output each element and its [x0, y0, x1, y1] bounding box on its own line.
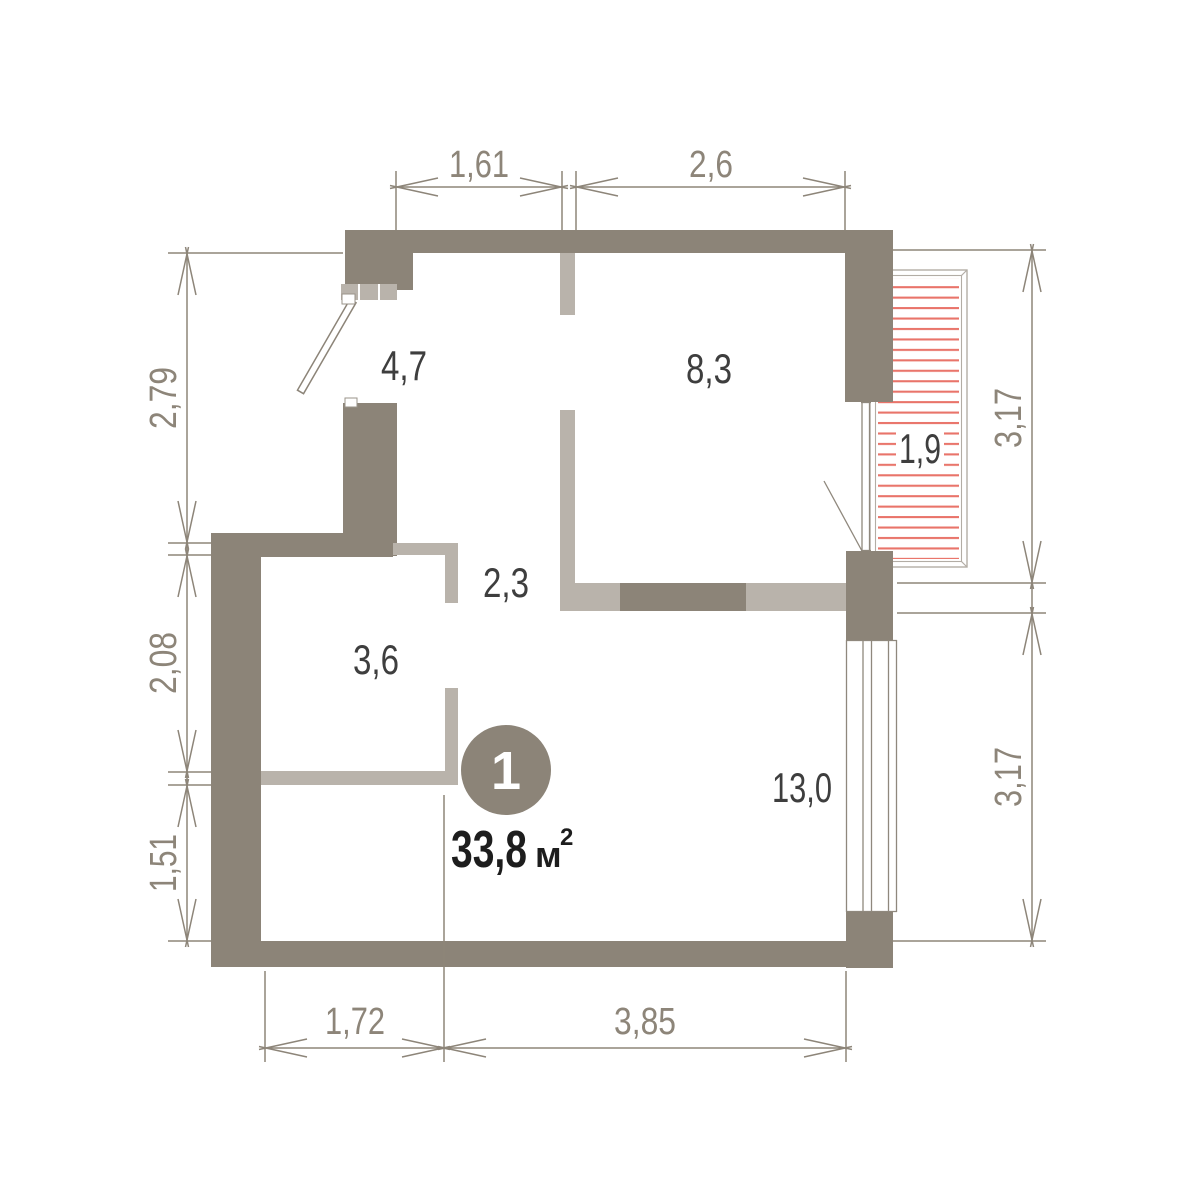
wall-top — [345, 230, 893, 253]
floor-plan-canvas: 1,61 2,6 2,79 2,08 1,51 3,17 3,17 1,72 3… — [0, 0, 1200, 1180]
dim-label-right-2: 3,17 — [988, 747, 1030, 807]
balcony-glazing — [824, 402, 871, 551]
dim-label-top-2: 2,6 — [689, 144, 733, 186]
partition-bedroom-stub — [560, 253, 575, 315]
room-label-bedroom: 8,3 — [686, 345, 732, 392]
room-label-corridor: 2,3 — [483, 559, 529, 606]
dim-label-bottom-2: 3,85 — [614, 1001, 676, 1043]
dim-label-right-1: 3,17 — [988, 388, 1030, 448]
unit-info: 1 33,8 м 2 — [451, 725, 573, 879]
entry-door — [297, 294, 357, 407]
room-label-living-room: 13,0 — [772, 764, 832, 811]
partition-bedroom-bottom-b — [746, 583, 846, 611]
wall-partition-dark-segment — [620, 583, 746, 611]
room-label-balcony: 1,9 — [899, 425, 941, 472]
door-hinge-block — [342, 294, 355, 304]
total-area-value: 33,8 — [451, 821, 527, 879]
wall-pier-bottom-right — [846, 912, 893, 968]
living-room-window — [846, 640, 897, 912]
floor-plan-drawing: 1,61 2,6 2,79 2,08 1,51 3,17 3,17 1,72 3… — [0, 0, 1200, 1180]
dim-label-left-1: 2,79 — [143, 367, 185, 429]
partition-bathroom-right-lower — [445, 688, 458, 785]
partition-bedroom-left — [560, 410, 575, 611]
unit-number: 1 — [491, 741, 521, 801]
wall-left — [211, 533, 261, 967]
dim-label-left-3: 1,51 — [143, 834, 185, 892]
partition-bedroom-bottom-a — [560, 583, 620, 611]
room-label-hallway: 4,7 — [381, 342, 427, 389]
dim-label-left-2: 2,08 — [143, 632, 185, 694]
door-leaf — [297, 299, 356, 393]
total-area-superscript: 2 — [560, 824, 573, 851]
room-label-bathroom: 3,6 — [353, 636, 399, 683]
dim-label-bottom-1: 1,72 — [325, 1001, 385, 1043]
wall-pier-top-right — [845, 230, 893, 402]
door-jamb-block — [345, 398, 357, 407]
balcony-door-swing — [824, 481, 862, 551]
wall-bottom — [211, 941, 893, 967]
dim-label-top-1: 1,61 — [449, 144, 509, 186]
partition-bathroom-right-upper — [445, 543, 458, 603]
wall-entry-block — [345, 230, 413, 290]
partition-bathroom-bottom — [261, 771, 455, 785]
wall-pier-mid-right — [846, 551, 893, 640]
total-area-unit: м — [535, 834, 562, 875]
